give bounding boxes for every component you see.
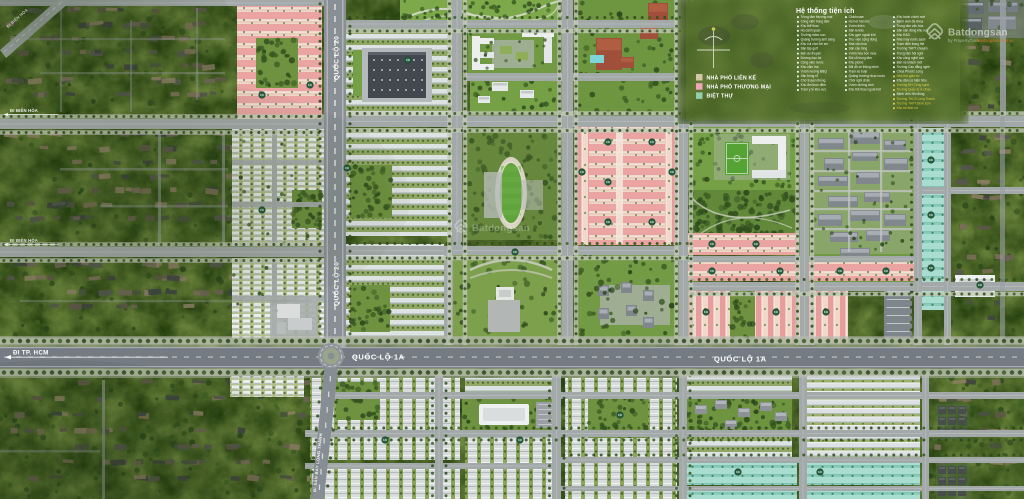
svg-text:Clubhouse: Clubhouse [849, 15, 864, 19]
svg-text:Batdongsan: Batdongsan [948, 28, 1008, 39]
svg-text:Trường Quốc tế Á Châu: Trường Quốc tế Á Châu [897, 88, 931, 92]
svg-text:by PropertyGuru: by PropertyGuru [948, 38, 979, 43]
svg-text:Vườn dưỡng sinh: Vườn dưỡng sinh [849, 83, 875, 87]
svg-text:Vườn nướng BBQ: Vườn nướng BBQ [801, 70, 828, 74]
svg-text:Đồi cỏ trung tâm: Đồi cỏ trung tâm [849, 56, 873, 60]
svg-text:Hệ thống tiện ích: Hệ thống tiện ích [796, 7, 854, 15]
svg-text:Khu thể thao ngoài trời: Khu thể thao ngoài trời [849, 88, 882, 92]
svg-text:Sân cầu lông: Sân cầu lông [849, 47, 868, 51]
svg-text:Sân vận động khu vực: Sân vận động khu vực [897, 29, 929, 33]
svg-text:Trường THPT chuyên: Trường THPT chuyên [897, 47, 928, 51]
svg-text:Công viên trung tâm: Công viên trung tâm [801, 19, 830, 23]
svg-text:Batdongsan: Batdongsan [472, 223, 530, 234]
svg-text:Trường THPT Bình Sơn: Trường THPT Bình Sơn [897, 101, 931, 105]
svg-text:Trường ĐH Công nghệ: Trường ĐH Công nghệ [897, 83, 930, 87]
svg-text:Trạm y tế khu vực: Trạm y tế khu vực [801, 88, 827, 92]
svg-text:Nhà máy nước sạch: Nhà máy nước sạch [897, 38, 926, 42]
svg-text:Nhà văn hóa: Nhà văn hóa [849, 42, 867, 46]
svg-text:Khu công nghệ cao: Khu công nghệ cao [897, 56, 925, 60]
svg-text:Hồ cảnh quan: Hồ cảnh quan [801, 29, 821, 33]
svg-text:Hồ bơi tràn bờ: Hồ bơi tràn bờ [849, 19, 870, 23]
svg-text:Khu cắm trại: Khu cắm trại [801, 64, 819, 69]
svg-text:Vườn thiền: Vườn thiền [849, 24, 865, 28]
svg-text:Chùa Phước Long: Chùa Phước Long [897, 70, 923, 74]
svg-text:QUỐC LỘ 1A: QUỐC LỘ 1A [714, 354, 767, 364]
svg-text:Khu hành chính mới: Khu hành chính mới [897, 15, 926, 19]
svg-text:Khu tái định cư: Khu tái định cư [897, 106, 919, 110]
svg-text:BIỆT THỰ: BIỆT THỰ [707, 92, 734, 100]
svg-text:Khu vui chơi trẻ em: Khu vui chơi trẻ em [801, 42, 829, 46]
svg-text:Đường dạo bộ: Đường dạo bộ [801, 56, 822, 60]
svg-text:NHÀ PHỐ THƯƠNG MẠI: NHÀ PHỐ THƯƠNG MẠI [707, 84, 772, 91]
svg-text:Sân tập golf: Sân tập golf [801, 47, 818, 51]
svg-text:Vườn hoa bốn mùa: Vườn hoa bốn mùa [849, 51, 877, 55]
svg-text:Khu thể thao: Khu thể thao [801, 24, 819, 28]
svg-text:Bến xe khách mới: Bến xe khách mới [897, 60, 923, 64]
svg-text:QUỐC LỘ 1A: QUỐC LỘ 1A [352, 352, 405, 362]
svg-text:NHÀ PHỐ LIÊN KẾ: NHÀ PHỐ LIÊN KẾ [707, 73, 757, 81]
svg-text:Bệnh viện đa khoa: Bệnh viện đa khoa [897, 19, 924, 23]
svg-text:batdongsan.com.vn: batdongsan.com.vn [977, 38, 1014, 43]
svg-text:Quảng trường nhạc nước: Quảng trường nhạc nước [849, 74, 886, 78]
svg-text:Quảng trường ánh sáng: Quảng trường ánh sáng [801, 38, 835, 42]
svg-text:Khu picnic: Khu picnic [849, 60, 864, 64]
svg-text:Trường mầm non: Trường mầm non [801, 33, 826, 37]
svg-text:Trường Cao đẳng nghề: Trường Cao đẳng nghề [897, 64, 931, 69]
svg-text:Trường THCS Long Thành: Trường THCS Long Thành [897, 97, 935, 101]
svg-text:Khu ẩm thực đêm: Khu ẩm thực đêm [801, 83, 827, 87]
svg-text:Trung tâm thương mại: Trung tâm thương mại [801, 15, 833, 19]
svg-text:Sân tennis: Sân tennis [849, 29, 864, 33]
svg-text:Trung tâm hội nghị: Trung tâm hội nghị [897, 51, 924, 55]
svg-text:Khu dân cư hiện hữu: Khu dân cư hiện hữu [897, 79, 927, 83]
svg-text:Trung tâm văn hóa: Trung tâm văn hóa [897, 24, 924, 28]
svg-text:Trạm điện trung thế: Trạm điện trung thế [897, 42, 925, 46]
svg-text:Bãi đỗ xe thông minh: Bãi đỗ xe thông minh [849, 64, 879, 69]
svg-text:ĐI TP. HCM: ĐI TP. HCM [13, 350, 49, 357]
svg-text:Sân bóng rổ: Sân bóng rổ [801, 74, 819, 78]
svg-text:Khu gym ngoài trời: Khu gym ngoài trời [849, 33, 876, 37]
svg-text:Công viên nước: Công viên nước [801, 60, 824, 64]
svg-text:Khu R&D: Khu R&D [897, 33, 911, 37]
svg-text:Trạm xe buýt: Trạm xe buýt [849, 70, 868, 74]
svg-text:Bệnh viện Nhi đồng: Bệnh viện Nhi đồng [897, 92, 925, 96]
svg-text:Thư viện cộng đồng: Thư viện cộng đồng [849, 38, 878, 42]
svg-text:Nhà thờ giáo xứ: Nhà thờ giáo xứ [897, 74, 921, 78]
svg-text:Chòi nghỉ chân: Chòi nghỉ chân [849, 79, 870, 83]
svg-text:Bến du thuyền: Bến du thuyền [801, 51, 822, 55]
svg-text:Chợ truyền thống: Chợ truyền thống [801, 79, 826, 83]
